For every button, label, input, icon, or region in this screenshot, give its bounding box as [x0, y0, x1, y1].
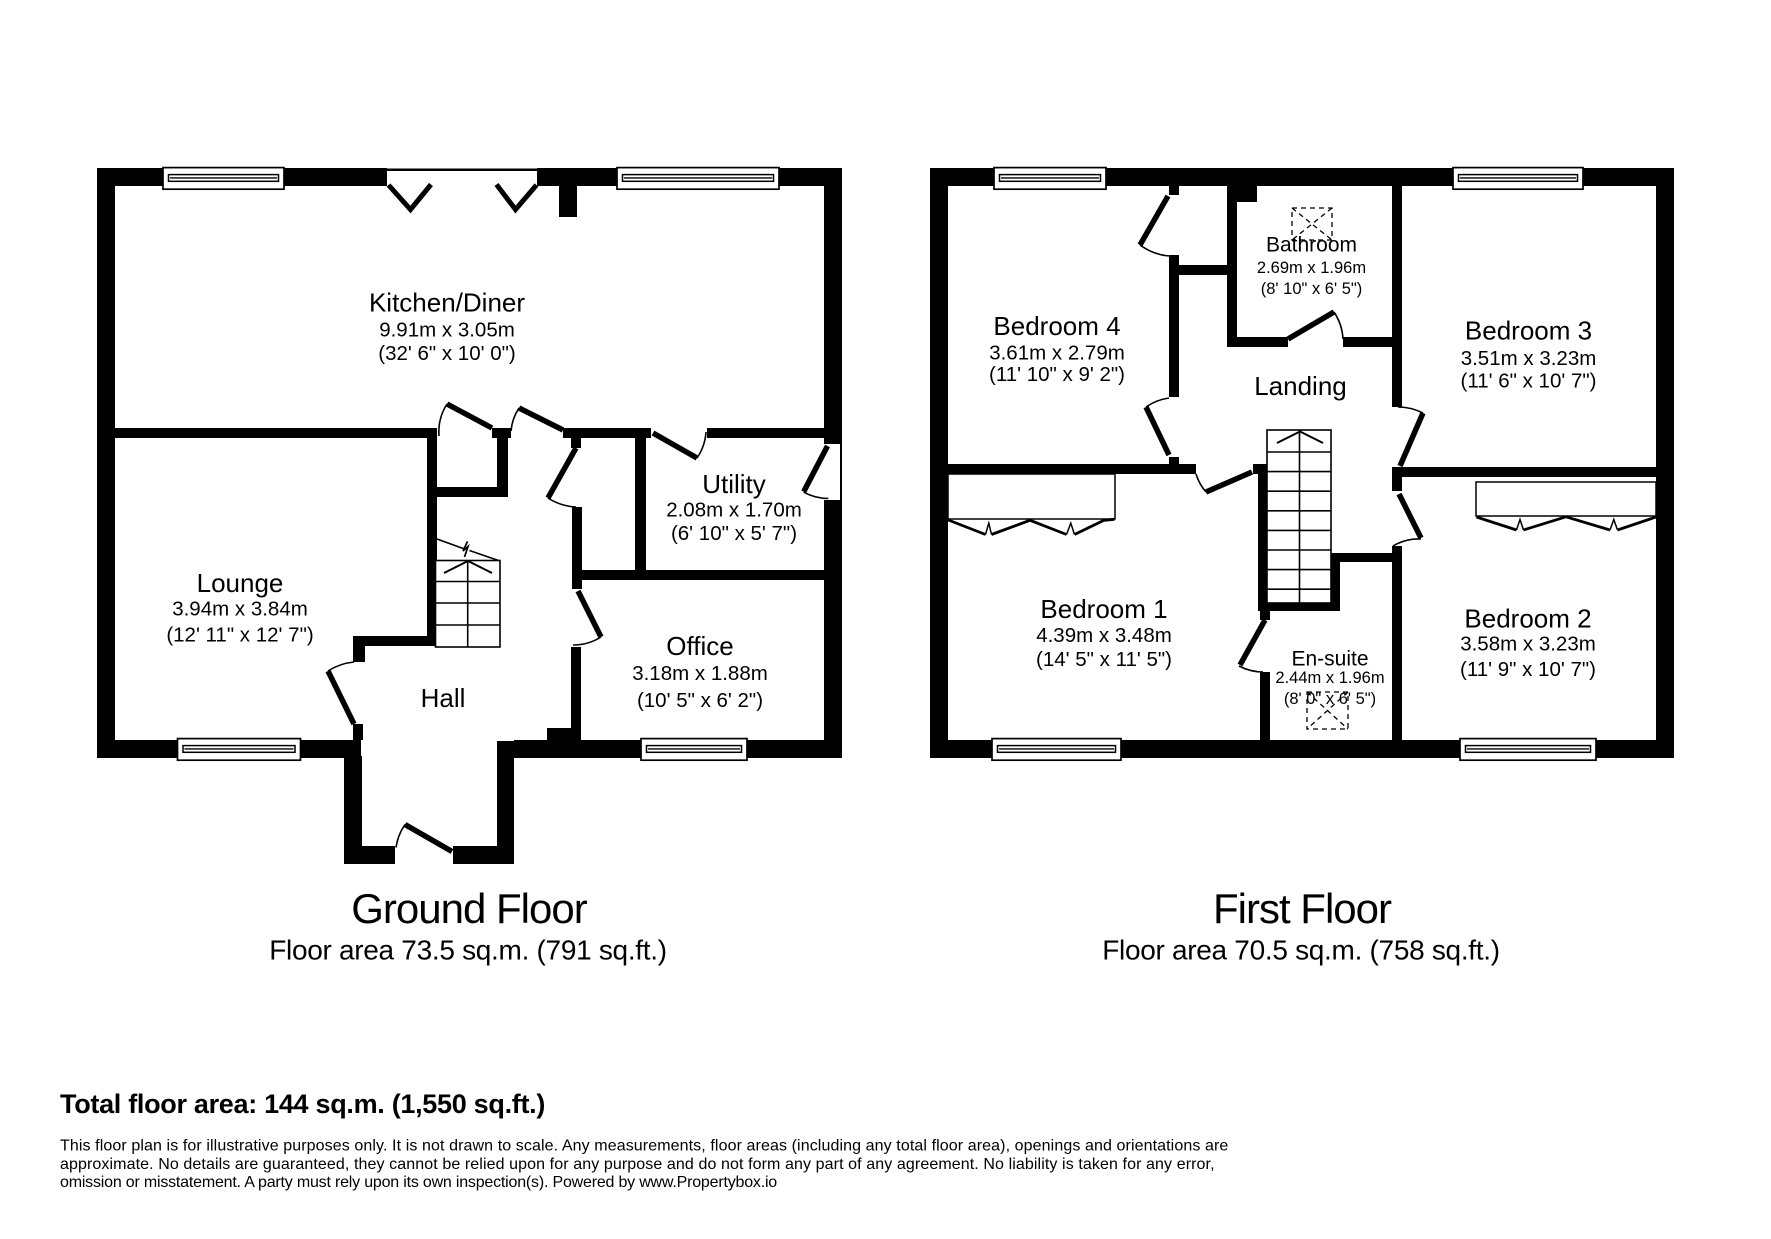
- svg-text:Lounge: Lounge: [197, 568, 284, 598]
- svg-text:2.08m x 1.70m: 2.08m x 1.70m: [666, 499, 802, 522]
- svg-text:Office: Office: [666, 631, 733, 661]
- svg-text:3.18m x 1.88m: 3.18m x 1.88m: [632, 662, 768, 685]
- svg-text:(10' 5" x 6' 2"): (10' 5" x 6' 2"): [637, 689, 763, 712]
- svg-text:(32' 6" x 10' 0"): (32' 6" x 10' 0"): [378, 342, 515, 365]
- svg-text:Bedroom 2: Bedroom 2: [1464, 604, 1591, 634]
- svg-text:(11' 9" x 10' 7"): (11' 9" x 10' 7"): [1460, 658, 1596, 681]
- svg-text:4.39m x 3.48m: 4.39m x 3.48m: [1036, 624, 1172, 647]
- svg-text:Bedroom 1: Bedroom 1: [1040, 594, 1167, 624]
- svg-text:Bedroom 3: Bedroom 3: [1465, 316, 1592, 346]
- svg-text:(8' 10" x 6' 5"): (8' 10" x 6' 5"): [1261, 280, 1362, 298]
- svg-text:2.44m x 1.96m: 2.44m x 1.96m: [1275, 669, 1384, 687]
- svg-text:3.51m x 3.23m: 3.51m x 3.23m: [1461, 347, 1597, 370]
- svg-text:Floor area 73.5 sq.m. (791 sq.: Floor area 73.5 sq.m. (791 sq.ft.): [269, 935, 667, 966]
- svg-text:Hall: Hall: [421, 683, 466, 713]
- svg-text:approximate. No details are gu: approximate. No details are guaranteed, …: [60, 1156, 1215, 1173]
- svg-text:En-suite: En-suite: [1291, 647, 1368, 670]
- svg-text:omission or misstatement. A pa: omission or misstatement. A party must r…: [60, 1174, 777, 1191]
- svg-text:3.94m x 3.84m: 3.94m x 3.84m: [172, 598, 308, 621]
- svg-text:Floor area 70.5 sq.m. (758 sq.: Floor area 70.5 sq.m. (758 sq.ft.): [1102, 935, 1500, 966]
- svg-text:(14' 5" x 11' 5"): (14' 5" x 11' 5"): [1036, 648, 1172, 671]
- svg-text:Utility: Utility: [702, 469, 766, 499]
- svg-text:(11' 6" x 10' 7"): (11' 6" x 10' 7"): [1461, 370, 1597, 393]
- svg-text:(11' 10" x 9' 2"): (11' 10" x 9' 2"): [989, 363, 1125, 386]
- svg-text:(12' 11" x 12' 7"): (12' 11" x 12' 7"): [166, 624, 313, 647]
- svg-text:Total floor area: 144 sq.m. (1: Total floor area: 144 sq.m. (1,550 sq.ft…: [60, 1089, 545, 1119]
- svg-text:First Floor: First Floor: [1213, 885, 1392, 932]
- svg-text:Ground Floor: Ground Floor: [351, 885, 587, 932]
- svg-text:(8' 0" x 6' 5"): (8' 0" x 6' 5"): [1284, 690, 1376, 708]
- svg-text:2.69m x 1.96m: 2.69m x 1.96m: [1257, 259, 1366, 277]
- svg-text:9.91m x 3.05m: 9.91m x 3.05m: [379, 319, 515, 342]
- svg-text:3.58m x 3.23m: 3.58m x 3.23m: [1460, 632, 1596, 655]
- svg-text:Landing: Landing: [1254, 371, 1347, 401]
- svg-text:Bedroom 4: Bedroom 4: [993, 311, 1120, 341]
- svg-text:Bathroom: Bathroom: [1266, 234, 1357, 257]
- svg-text:Kitchen/Diner: Kitchen/Diner: [369, 288, 525, 318]
- svg-text:This floor plan is for illustr: This floor plan is for illustrative purp…: [60, 1138, 1228, 1155]
- svg-text:3.61m x 2.79m: 3.61m x 2.79m: [989, 342, 1125, 365]
- svg-text:(6' 10" x 5' 7"): (6' 10" x 5' 7"): [671, 522, 797, 545]
